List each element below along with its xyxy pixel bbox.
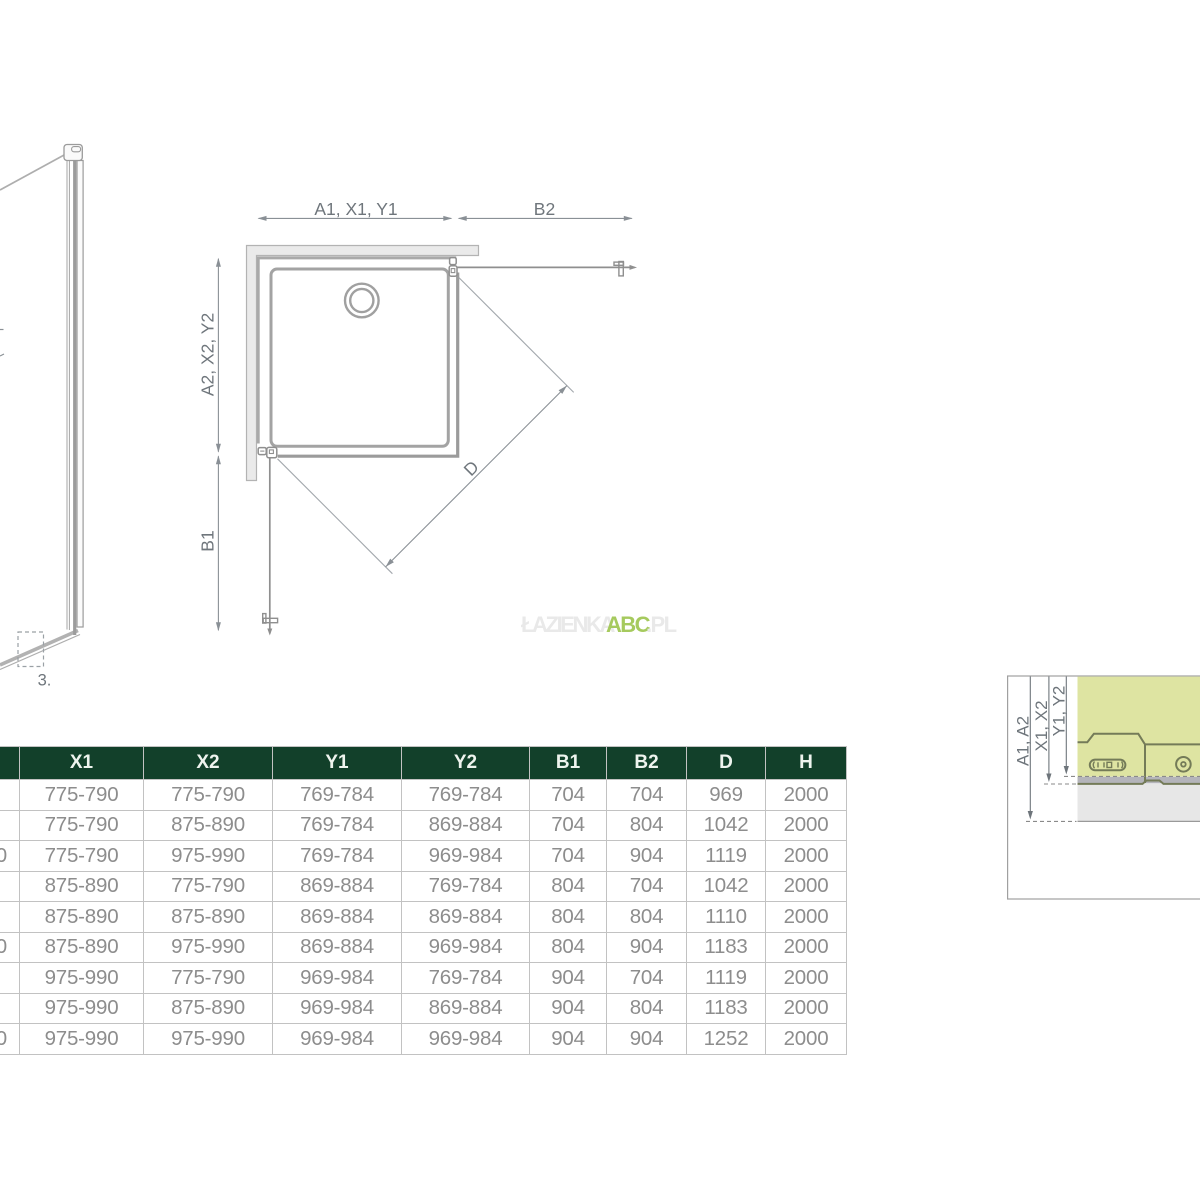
svg-text:Y1, Y2: Y1, Y2 (1050, 686, 1069, 737)
svg-text:B1: B1 (198, 530, 218, 551)
svg-text:X1, X2: X1, X2 (1032, 700, 1051, 751)
svg-text:B2: B2 (534, 199, 555, 219)
svg-text:3.: 3. (38, 672, 52, 690)
svg-text:A1, A2: A1, A2 (1014, 716, 1033, 766)
svg-text:A2, X2, Y2: A2, X2, Y2 (198, 313, 218, 396)
svg-text:A1, X1, Y1: A1, X1, Y1 (314, 199, 397, 219)
svg-text:D: D (460, 457, 483, 480)
